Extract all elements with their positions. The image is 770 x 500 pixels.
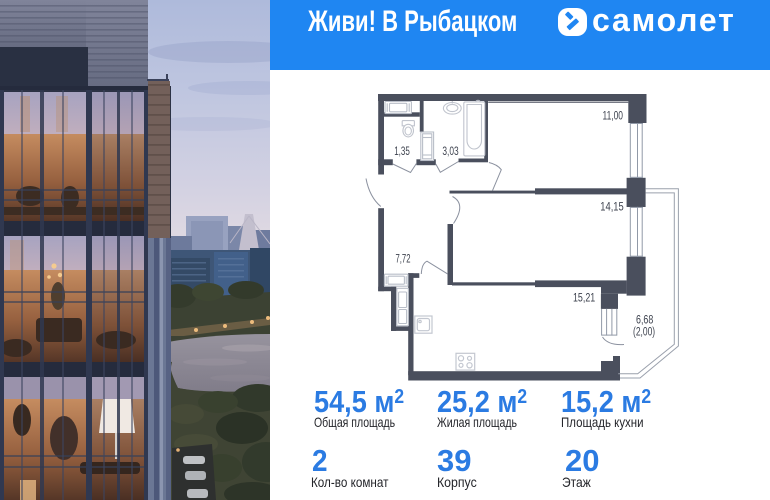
- svg-text:3,03: 3,03: [442, 146, 458, 158]
- svg-text:11,00: 11,00: [603, 111, 624, 123]
- svg-text:14,15: 14,15: [600, 202, 623, 214]
- svg-text:15,21: 15,21: [573, 293, 595, 305]
- svg-text:1,35: 1,35: [394, 146, 410, 158]
- svg-text:7,72: 7,72: [396, 254, 411, 266]
- svg-text:(2,00): (2,00): [633, 327, 655, 339]
- svg-text:6,68: 6,68: [636, 315, 653, 327]
